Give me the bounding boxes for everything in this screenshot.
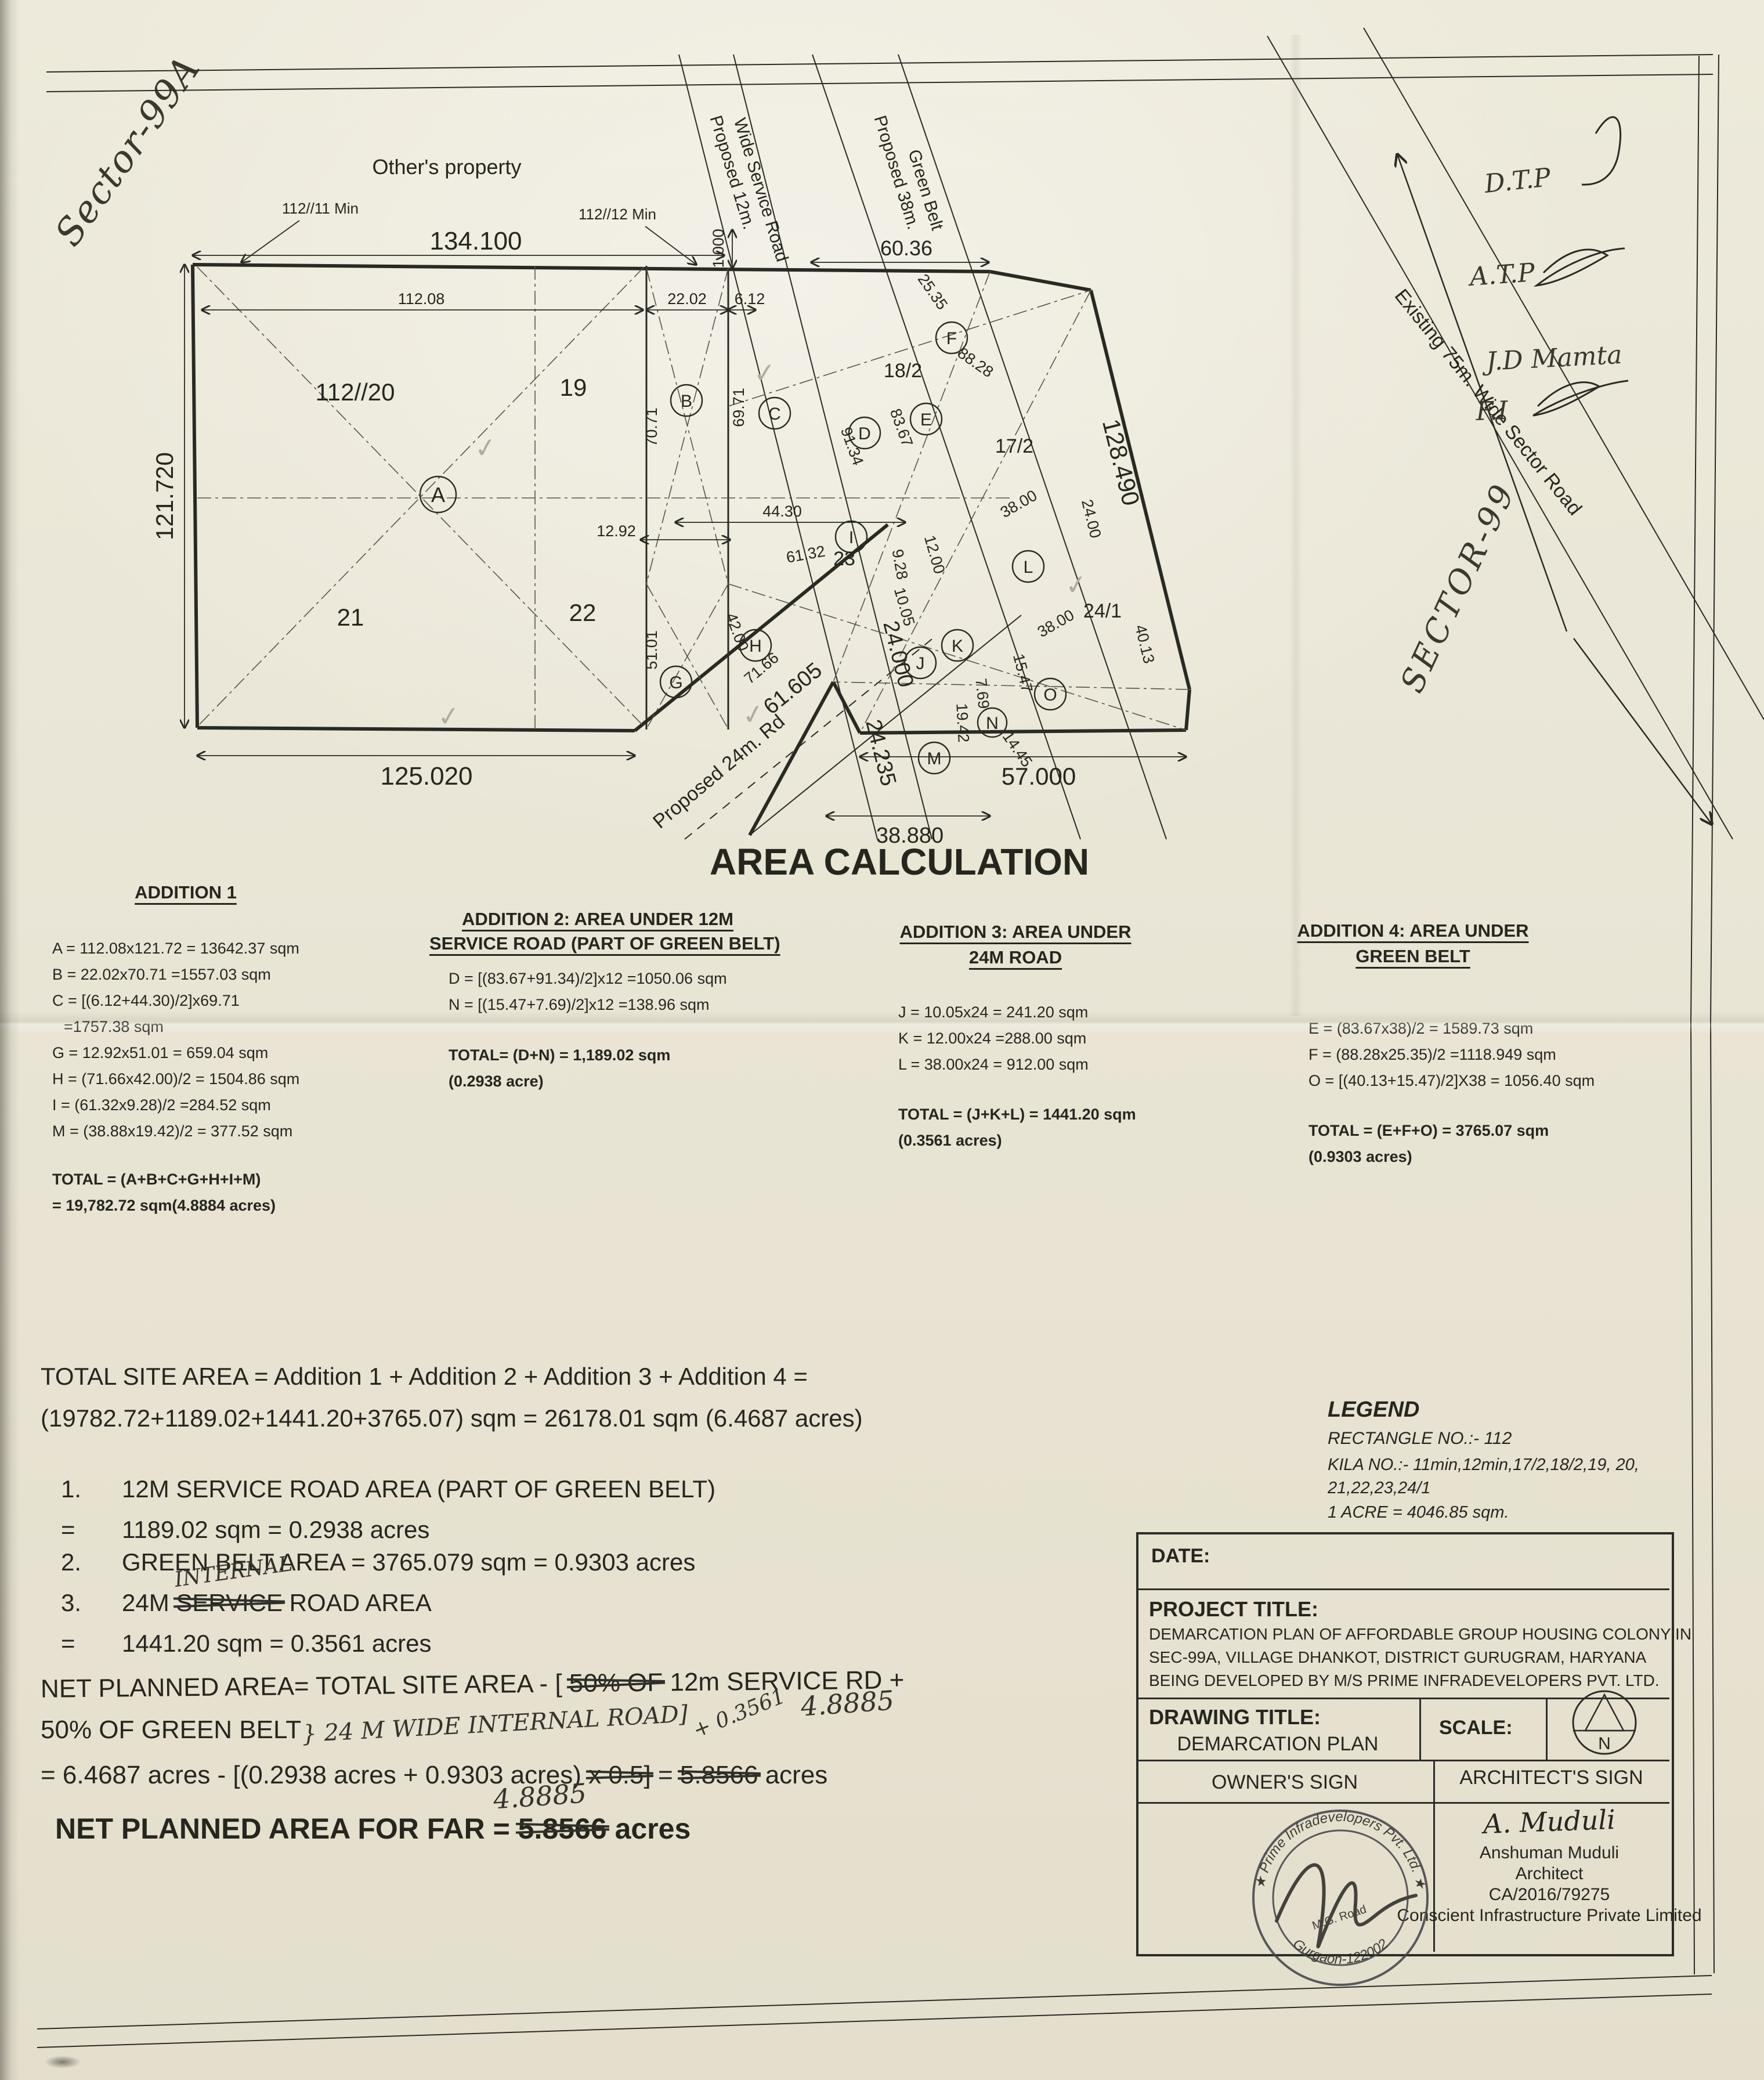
date-label: DATE:: [1151, 1545, 1210, 1568]
check-mark: ✓: [436, 700, 462, 732]
addition4-line: F = (88.28x25.35)/2 =1118.949 sqm: [1308, 1042, 1556, 1068]
check-mark: ✓: [472, 431, 498, 464]
dim-9-28: 9.28: [889, 548, 912, 581]
addition3-total: TOTAL = (J+K+L) = 1441.20 sqm: [898, 1102, 1136, 1128]
dim-40-13: 40.13: [1132, 623, 1158, 665]
addition2-heading-2: SERVICE ROAD (PART OF GREEN BELT): [429, 933, 766, 954]
handwritten-jd: J.D Mamta: [1481, 340, 1623, 377]
addition1-total: TOTAL = (A+B+C+G+H+I+M): [52, 1167, 261, 1193]
handwritten-dtp: D.T.P: [1483, 162, 1553, 199]
others-property-label: Other's property: [373, 155, 522, 179]
addition1-heading: ADDITION 1: [122, 882, 250, 903]
dim-15-47: 15.47: [1010, 652, 1036, 694]
list-item-3: 3.24M SERVICE ROAD AREA: [61, 1589, 432, 1617]
list-item-1-text: 12M SERVICE ROAD AREA (PART OF GREEN BEL…: [122, 1475, 715, 1503]
svg-text:Gurgaon-122002: Gurgaon-122002: [1290, 1936, 1391, 1967]
owners-sign-label: OWNER'S SIGN: [1136, 1771, 1433, 1794]
north-symbol: N: [1567, 1688, 1642, 1763]
addition1-line: A = 112.08x121.72 = 13642.37 sqm: [52, 936, 299, 962]
list-item-1-val: 1189.02 sqm = 0.2938 acres: [122, 1516, 429, 1543]
project-title-line1: DEMARCATION PLAN OF AFFORDABLE GROUP HOU…: [1149, 1625, 1691, 1644]
dim-134-100: 134.100: [429, 227, 522, 255]
dim-24-000: 24.000: [878, 619, 918, 690]
point-L: L: [1024, 558, 1033, 577]
net-line3-post: acres: [758, 1761, 827, 1789]
net-planned-line2: 50% OF GREEN BELT: [41, 1716, 301, 1745]
addition2-total-acres: (0.2938 acre): [449, 1068, 544, 1095]
title-block-col-line: [1546, 1698, 1548, 1761]
dim-7-69: 7.69: [972, 677, 992, 709]
addition3-heading-2: 24M ROAD: [899, 947, 1132, 968]
list-item-3-value: =1441.20 sqm = 0.3561 acres: [61, 1630, 432, 1658]
plot-23: 23: [833, 548, 855, 570]
addition2-line: D = [(83.67+91.34)/2]x12 =1050.06 sqm: [449, 966, 727, 992]
project-title-label: PROJECT TITLE:: [1149, 1597, 1318, 1622]
dim-70-71: 70.71: [643, 407, 660, 447]
dim-12-00: 12.00: [921, 533, 948, 576]
leader-line-2: [645, 226, 696, 265]
architect-title: Architect: [1433, 1864, 1665, 1884]
list-item-1-value: =1189.02 sqm = 0.2938 acres: [61, 1516, 429, 1544]
addition1-line: G = 12.92x51.01 = 659.04 sqm: [52, 1040, 268, 1066]
dim-51-01: 51.01: [643, 630, 660, 670]
legend-kila-no-2: 21,22,23,24/1: [1328, 1479, 1430, 1498]
dim-24-235: 24.235: [861, 717, 901, 789]
point-M: M: [927, 749, 942, 768]
architect-company: Conscient Infrastructure Private Limited: [1393, 1906, 1706, 1926]
list-item-1: 1.12M SERVICE ROAD AREA (PART OF GREEN B…: [61, 1475, 715, 1503]
list-item-1-no: 1.: [61, 1475, 122, 1503]
plot-17-2: 17/2: [995, 435, 1033, 457]
scan-edge-shadow: [0, 0, 20, 2080]
addition1-line: B = 22.02x70.71 =1557.03 sqm: [52, 962, 271, 988]
point-K: K: [952, 637, 963, 656]
point-D: D: [858, 424, 871, 443]
addition1-line: H = (71.66x42.00)/2 = 1504.86 sqm: [52, 1066, 299, 1092]
handwritten-sector-99a: Sector-99A: [47, 48, 209, 254]
site-plan-drawing: 134.100 60.36 121.720 125.020 57.000 38.…: [0, 0, 1764, 859]
handwritten-48885-inline: 4.8885: [800, 1684, 895, 1722]
total-site-area-line2: (19782.72+1189.02+1441.20+3765.07) sqm =…: [41, 1404, 863, 1432]
addition3-heading-1: ADDITION 3: AREA UNDER: [899, 922, 1132, 943]
list-item-2-no: 2.: [61, 1548, 122, 1576]
legend-kila-no: KILA NO.:- 11min,12min,17/2,18/2,19, 20,: [1328, 1456, 1639, 1475]
far-post: acres: [607, 1812, 691, 1845]
dim-60-36: 60.36: [880, 236, 932, 260]
handwritten-atp: A.T.P: [1466, 258, 1537, 292]
point-O: O: [1043, 685, 1057, 705]
dim-24-00: 24.00: [1078, 497, 1104, 540]
handwritten-road-addition: } 24 M WIDE INTERNAL ROAD]: [301, 1701, 688, 1748]
dim-44-30: 44.30: [762, 503, 802, 520]
dim-38-00-a: 38.00: [997, 486, 1040, 521]
drawing-title-value: DEMARCATION PLAN: [1136, 1733, 1419, 1756]
net-line3-mid: =: [651, 1761, 680, 1789]
leader-label-112-11: 112//11 Min: [282, 200, 359, 217]
addition4-total-acres: (0.9303 acres): [1308, 1144, 1412, 1170]
dim-6-12: 6.12: [735, 290, 765, 308]
drawing-title-label: DRAWING TITLE:: [1149, 1705, 1321, 1729]
plot-22: 22: [569, 599, 597, 626]
architect-name: Anshuman Muduli: [1433, 1843, 1665, 1863]
net-planned-far-line: NET PLANNED AREA FOR FAR = 5.8566 acres: [55, 1812, 691, 1846]
far-struck: 5.8566: [518, 1812, 607, 1845]
handwritten-48885-far: 4.8885: [492, 1777, 587, 1815]
dim-128-490: 128.490: [1097, 416, 1145, 508]
list-item-3-post: ROAD AREA: [283, 1589, 432, 1616]
point-G: G: [669, 673, 682, 692]
stamp-ring-text: ★ Prime Infradevelopers Pvt. Ltd. ★: [1252, 1809, 1429, 1891]
point-B: B: [681, 392, 692, 411]
list-item-3-pre: 24M: [122, 1589, 176, 1616]
legend-title: LEGEND: [1328, 1398, 1419, 1422]
dimension-lines: [185, 221, 1186, 816]
addition1-line: M = (38.88x19.42)/2 = 377.52 sqm: [52, 1118, 292, 1144]
title-block-col-line: [1419, 1698, 1421, 1761]
check-mark: ✓: [752, 357, 777, 389]
handwritten-sector-99: SECTOR-99: [1393, 476, 1523, 698]
dim-19-42: 19.42: [953, 703, 972, 743]
plot-24-1: 24/1: [1083, 600, 1122, 622]
point-J: J: [916, 654, 925, 673]
total-site-area-line1: TOTAL SITE AREA = Addition 1 + Addition …: [41, 1363, 808, 1391]
handwritten-fi: F.I: [1475, 396, 1509, 427]
addition3-total-acres: (0.3561 acres): [898, 1128, 1002, 1154]
net-line3-struck: x 0.5]: [588, 1761, 651, 1789]
addition1-line: I = (61.32x9.28)/2 =284.52 sqm: [52, 1092, 271, 1118]
owner-stamp: ★ Prime Infradevelopers Pvt. Ltd. ★ Gurg…: [1242, 1799, 1439, 1996]
scan-corner-mark: [38, 2053, 87, 2071]
north-letter: N: [1598, 1734, 1611, 1753]
fold-crease-vertical: [1289, 35, 1302, 1016]
dim-69-71: 69.71: [730, 388, 747, 427]
signature-squiggle-fi: [1533, 381, 1628, 416]
leader-line-1: [241, 221, 299, 262]
net-line3-struck2: 5.8566: [680, 1761, 758, 1789]
check-mark: ✓: [1063, 568, 1089, 601]
fold-crease-horizontal: [0, 1011, 1764, 1034]
point-F: F: [946, 329, 957, 348]
rd24-label: Proposed 24m. Rd: [649, 710, 789, 833]
north-triangle: [1585, 1695, 1624, 1731]
net-line1-struck: 50% OF: [569, 1669, 663, 1698]
dim-12-92: 12.92: [597, 522, 636, 540]
dimension-labels: 134.100 60.36 121.720 125.020 57.000 38.…: [151, 227, 1158, 848]
project-title-line2: SEC-99A, VILLAGE DHANKOT, DISTRICT GURUG…: [1149, 1648, 1646, 1667]
signature-squiggle-atp: [1537, 248, 1625, 286]
net-line1-pre: NET PLANNED AREA= TOTAL SITE AREA - [: [41, 1669, 569, 1703]
stamp-bottom-text: Gurgaon-122002: [1290, 1936, 1391, 1967]
owner-signature-squiggle: [1277, 1865, 1416, 1947]
architects-sign-label: ARCHITECT'S SIGN: [1433, 1767, 1669, 1789]
list-item-1-eq: =: [61, 1516, 122, 1544]
addition4-line: O = [(40.13+15.47)/2]X38 = 1056.40 sqm: [1308, 1068, 1595, 1094]
plot-boundary: [193, 265, 1190, 835]
legend-acre-note: 1 ACRE = 4046.85 sqm.: [1328, 1503, 1509, 1522]
plot-18-2: 18/2: [884, 360, 922, 382]
point-E: E: [920, 410, 932, 429]
addition4-heading-2: GREEN BELT: [1297, 946, 1529, 967]
point-C: C: [768, 405, 781, 424]
addition2-total: TOTAL= (D+N) = 1,189.02 sqm: [449, 1042, 670, 1068]
addition1-line: C = [(6.12+44.30)/2]x69.71: [52, 988, 240, 1014]
legend-rectangle-no: RECTANGLE NO.:- 112: [1328, 1429, 1512, 1449]
dim-61-32: 61.32: [785, 542, 827, 566]
addition1-total-value: = 19,782.72 sqm(4.8884 acres): [52, 1193, 276, 1219]
list-item-3-struck: SERVICE: [176, 1589, 283, 1616]
plot-19: 19: [560, 374, 587, 401]
handwritten-annotations: Sector-99A SECTOR-99 D.T.P A.T.P J.D Mam…: [47, 48, 1628, 698]
addition4-heading-1: ADDITION 4: AREA UNDER: [1297, 920, 1529, 941]
addition4-total: TOTAL = (E+F+O) = 3765.07 sqm: [1308, 1118, 1549, 1144]
net-line2-text: 50% OF GREEN BELT: [41, 1716, 301, 1744]
dim-25-35: 25.35: [914, 271, 951, 313]
point-I: I: [849, 528, 854, 547]
dim-57-000: 57.000: [1002, 763, 1076, 790]
svg-text:★ Prime Infradevelopers Pvt. L: ★ Prime Infradevelopers Pvt. Ltd. ★: [1252, 1809, 1429, 1891]
dim-121-720: 121.720: [151, 452, 178, 540]
architect-registration: CA/2016/79275: [1433, 1885, 1665, 1905]
area-calculation-title: AREA CALCULATION: [673, 840, 1126, 883]
dim-1-000: 1.000: [710, 229, 727, 268]
addition3-line: L = 38.00x24 = 912.00 sqm: [898, 1052, 1089, 1078]
leader-label-112-12: 112//12 Min: [579, 205, 656, 223]
point-H: H: [749, 637, 762, 656]
dim-112-08: 112.08: [398, 290, 445, 308]
dim-38-00-b: 38.00: [1035, 606, 1078, 641]
scale-label: SCALE:: [1439, 1717, 1513, 1739]
scanned-demarcation-plan-page: 134.100 60.36 121.720 125.020 57.000 38.…: [0, 0, 1764, 2080]
dim-22-02: 22.02: [667, 290, 707, 308]
plot-21: 21: [337, 604, 364, 631]
list-item-3-eq: =: [61, 1630, 122, 1658]
point-A: A: [431, 483, 445, 507]
signature-squiggle-dtp: [1582, 117, 1621, 185]
sector-road-arrow-down: [1574, 638, 1712, 824]
addition2-heading-1: ADDITION 2: AREA UNDER 12M: [458, 909, 737, 930]
point-N: N: [986, 714, 999, 733]
far-pre: NET PLANNED AREA FOR FAR =: [55, 1812, 518, 1845]
net-planned-line3: = 6.4687 acres - [(0.2938 acres + 0.9303…: [41, 1761, 827, 1790]
list-item-3-no: 3.: [61, 1589, 122, 1617]
plot-112-20: 112//20: [315, 378, 395, 406]
dim-125-020: 125.020: [380, 762, 472, 790]
list-item-3-val: 1441.20 sqm = 0.3561 acres: [122, 1630, 432, 1657]
title-block-row-line: [1136, 1588, 1669, 1590]
list-item-2: 2.GREEN BELT AREA = 3765.079 sqm = 0.930…: [61, 1548, 695, 1576]
construction-lines: [197, 266, 1190, 733]
